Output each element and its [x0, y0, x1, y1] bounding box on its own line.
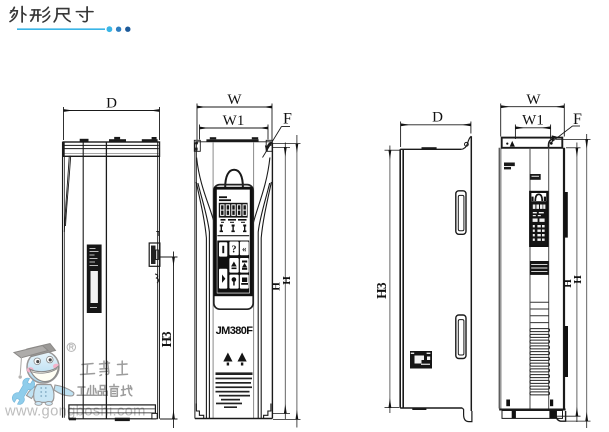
svg-text:W1: W1 — [522, 113, 544, 129]
svg-text:W1: W1 — [223, 113, 245, 129]
svg-text:H: H — [281, 276, 293, 285]
svg-text:D: D — [106, 96, 117, 112]
svg-text:W: W — [526, 92, 541, 108]
svg-text:D: D — [432, 110, 443, 126]
svg-text:H: H — [572, 275, 584, 284]
svg-text:F: F — [573, 111, 582, 128]
svg-text:H3: H3 — [374, 282, 389, 299]
svg-text:www.gongboshi.com: www.gongboshi.com — [4, 404, 146, 420]
svg-text:F: F — [283, 111, 292, 128]
svg-text:JM380F: JM380F — [216, 325, 254, 337]
svg-text:«: « — [242, 244, 247, 254]
svg-text:W: W — [227, 92, 242, 108]
svg-text:?: ? — [232, 245, 237, 256]
svg-text:H3: H3 — [159, 331, 174, 347]
